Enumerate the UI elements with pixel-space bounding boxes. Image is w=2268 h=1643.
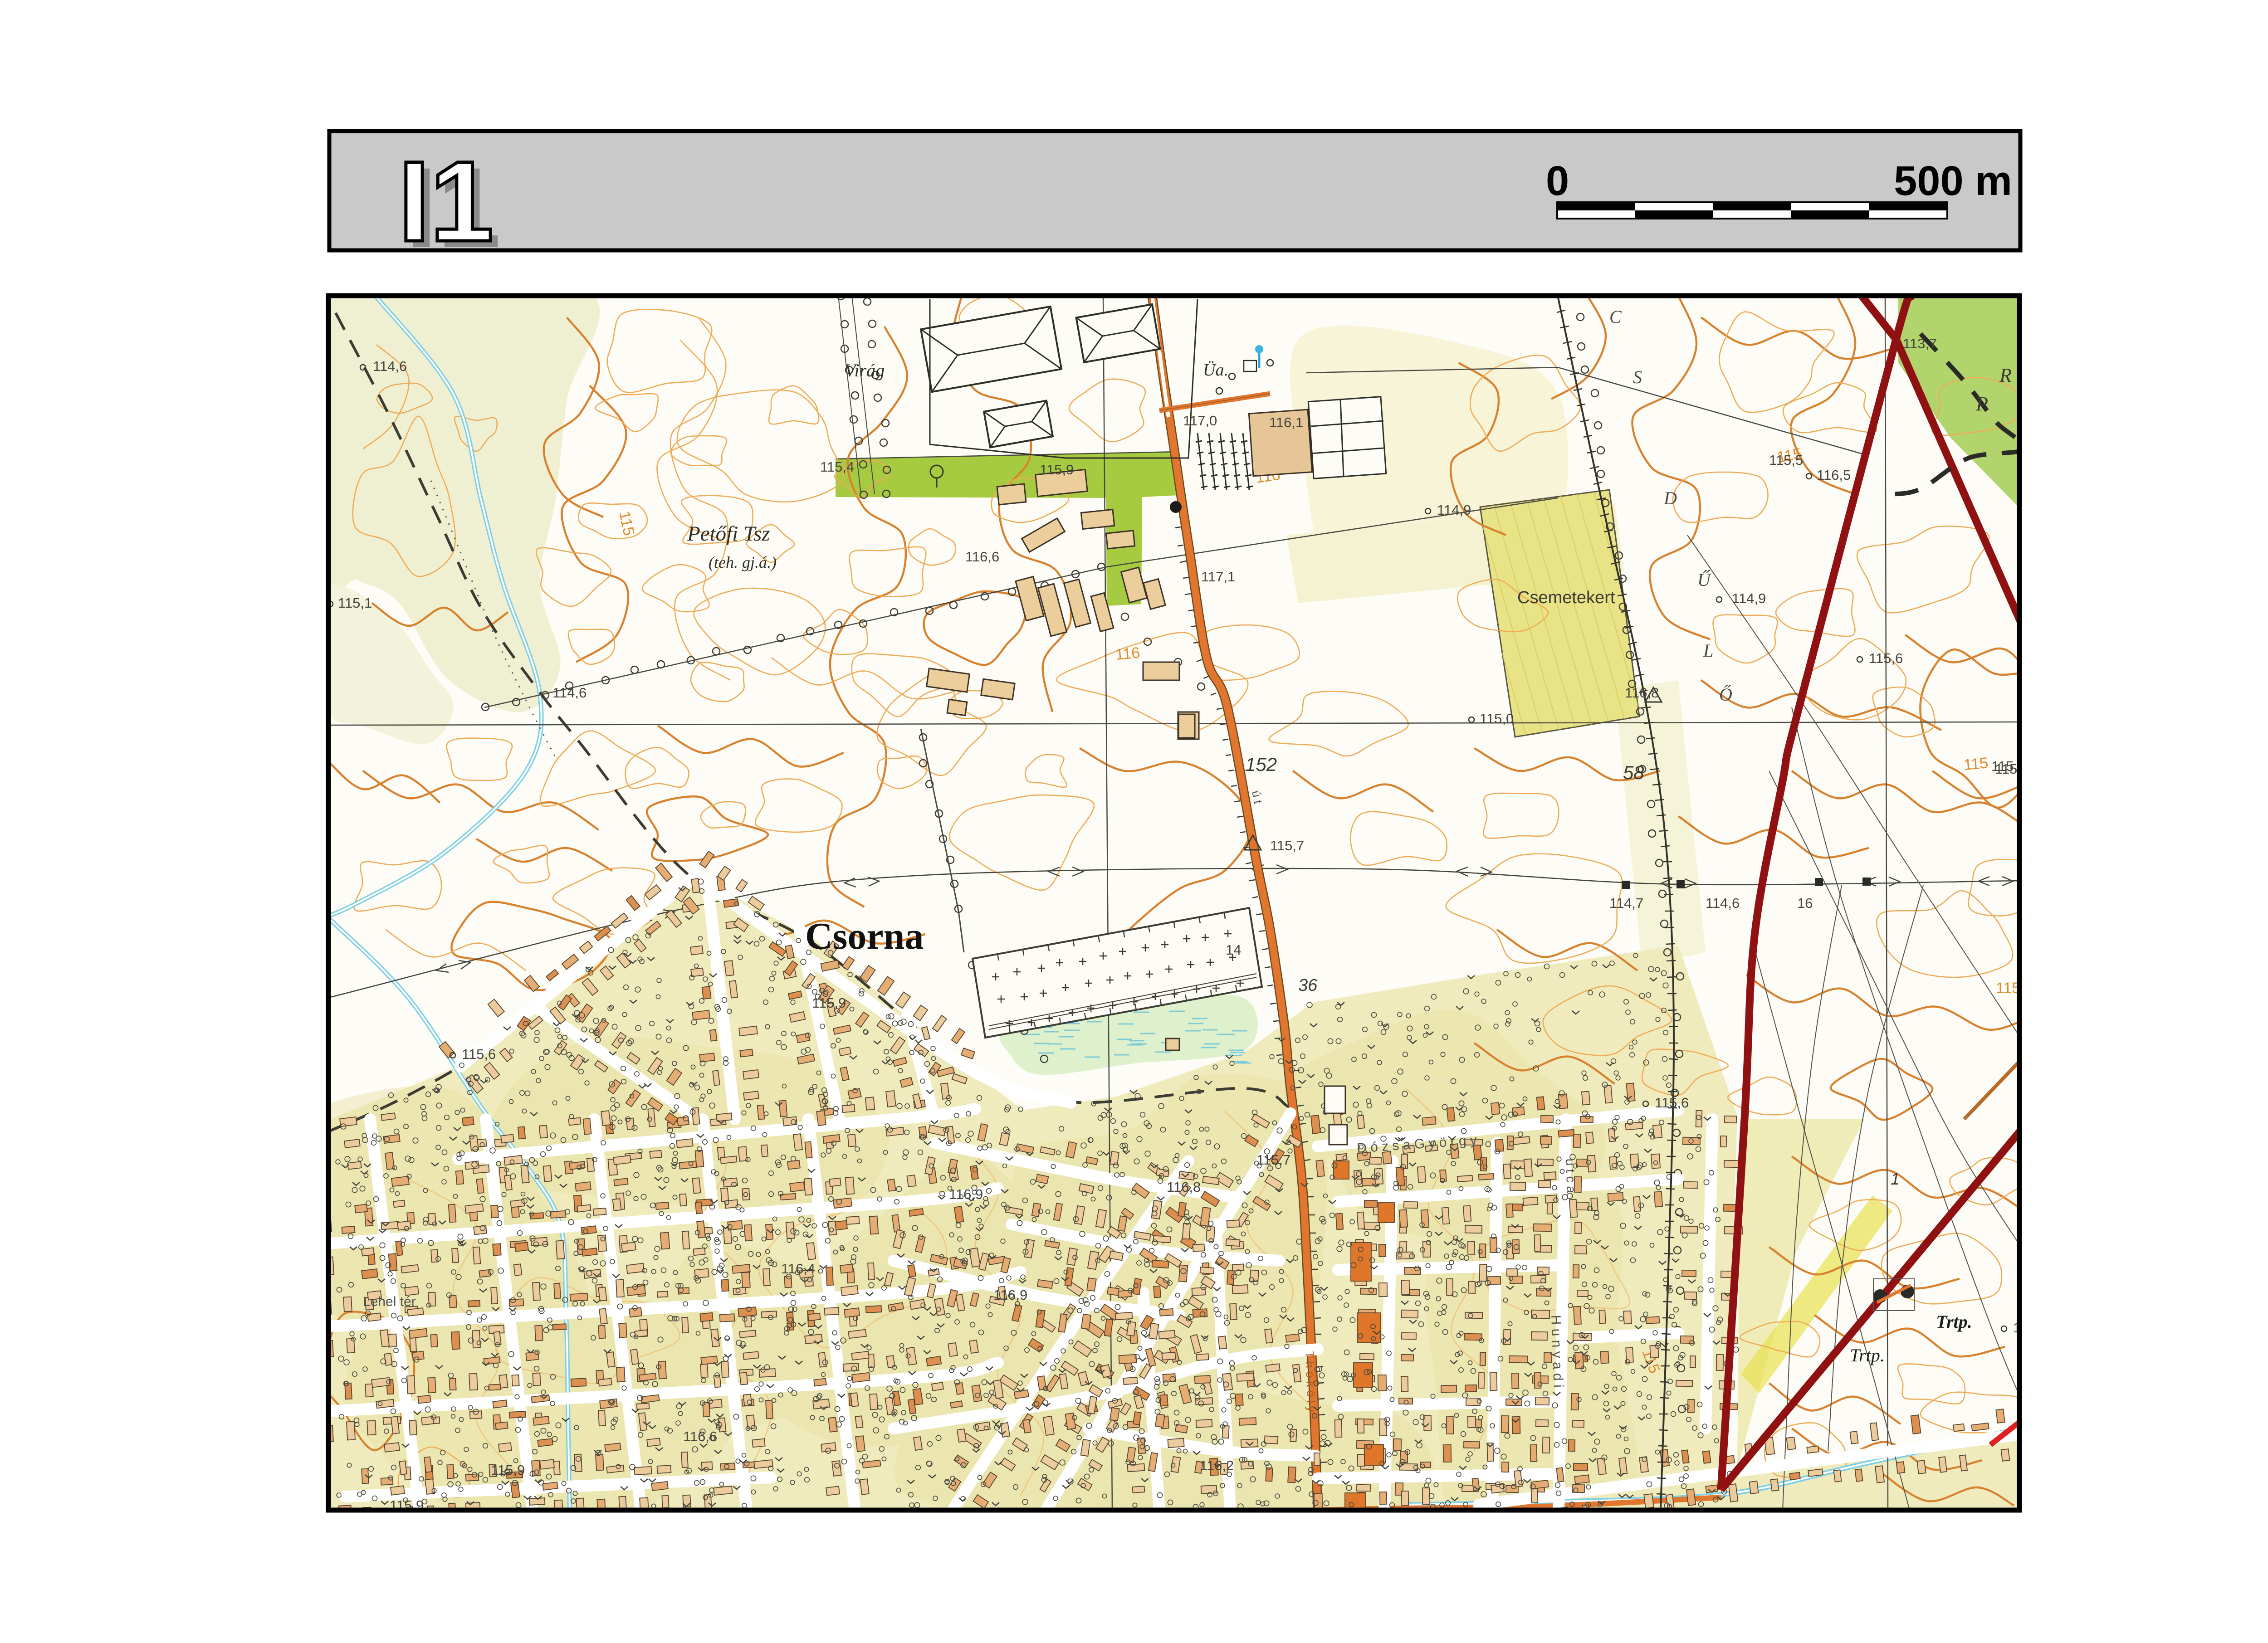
svg-text:114,6: 114,6 [1706, 895, 1740, 911]
svg-text:0: 0 [1546, 158, 1569, 204]
svg-text:114,9: 114,9 [1732, 590, 1766, 606]
svg-text:H u n y a d i: H u n y a d i [1548, 1315, 1566, 1388]
svg-text:114,6: 114,6 [373, 358, 407, 374]
svg-text:500 m: 500 m [1894, 158, 2012, 204]
svg-text:Csemetekert: Csemetekert [1517, 588, 1615, 607]
svg-text:Ű: Ű [1697, 570, 1712, 590]
svg-text:Ő: Ő [1719, 684, 1732, 705]
svg-text:115,5: 115,5 [1769, 452, 1803, 468]
svg-text:115,9: 115,9 [491, 1462, 525, 1478]
svg-text:152: 152 [1245, 754, 1277, 775]
svg-text:116,1: 116,1 [1269, 414, 1303, 430]
svg-text:117,0: 117,0 [1183, 413, 1217, 429]
svg-text:T h ö k ö l y: T h ö k ö l y [1303, 1351, 1319, 1412]
svg-text:116,9: 116,9 [949, 1186, 983, 1202]
svg-text:115,6: 115,6 [1869, 650, 1903, 666]
svg-text:116,6: 116,6 [683, 1428, 717, 1444]
svg-text:115,6: 115,6 [462, 1046, 496, 1062]
svg-text:Trtp.: Trtp. [1850, 1345, 1885, 1365]
svg-text:116,6: 116,6 [965, 549, 999, 565]
svg-text:115: 115 [1963, 754, 1989, 774]
svg-text:Csorna: Csorna [805, 915, 924, 957]
svg-text:1: 1 [1891, 1170, 1900, 1188]
svg-text:116,2: 116,2 [1200, 1458, 1234, 1473]
svg-text:Trtp.: Trtp. [1936, 1311, 1972, 1332]
svg-text:Üa.: Üa. [1203, 361, 1228, 380]
svg-text:ú t: ú t [1249, 790, 1265, 805]
svg-text:115,4: 115,4 [820, 459, 854, 475]
svg-text:I1: I1 [398, 138, 494, 265]
svg-text:u t c a: u t c a [1563, 1158, 1579, 1194]
svg-text:R: R [1999, 364, 2012, 386]
svg-text:58: 58 [1623, 762, 1644, 783]
svg-text:115,7: 115,7 [1256, 1152, 1290, 1168]
svg-text:Virág: Virág [845, 360, 885, 380]
svg-text:L: L [1703, 640, 1713, 661]
svg-text:D: D [1663, 488, 1677, 508]
svg-text:114,9: 114,9 [1437, 502, 1471, 518]
svg-text:117,1: 117,1 [1201, 569, 1235, 585]
svg-text:P: P [1975, 393, 1988, 415]
svg-text:115: 115 [1996, 980, 2020, 997]
svg-text:Lehel tér: Lehel tér [363, 1294, 416, 1309]
svg-text:115,6: 115,6 [1655, 1095, 1689, 1111]
svg-text:115,9: 115,9 [1040, 462, 1074, 478]
svg-text:116,4: 116,4 [781, 1261, 815, 1277]
svg-text:115,7: 115,7 [1270, 838, 1304, 853]
svg-text:116,8: 116,8 [1167, 1179, 1201, 1195]
svg-text:114,6: 114,6 [552, 685, 587, 701]
svg-text:115,1: 115,1 [338, 595, 372, 611]
svg-text:116: 116 [1114, 644, 1140, 663]
svg-text:(teh. gj.á.): (teh. gj.á.) [709, 553, 777, 571]
svg-text:16: 16 [1797, 895, 1813, 911]
svg-text:115,9: 115,9 [812, 995, 846, 1011]
svg-text:C: C [1609, 307, 1622, 327]
svg-text:S: S [1633, 367, 1642, 387]
svg-text:114,7: 114,7 [1609, 895, 1643, 911]
svg-text:116,5: 116,5 [1817, 467, 1851, 483]
svg-text:Petőfi Tsz: Petőfi Tsz [687, 522, 770, 546]
svg-text:14: 14 [1226, 942, 1241, 958]
svg-text:116,8: 116,8 [1625, 685, 1659, 701]
svg-text:115,0: 115,0 [1480, 711, 1514, 726]
svg-text:36: 36 [1298, 976, 1318, 995]
svg-text:116,9: 116,9 [993, 1287, 1027, 1303]
svg-text:113,7: 113,7 [1903, 336, 1937, 351]
